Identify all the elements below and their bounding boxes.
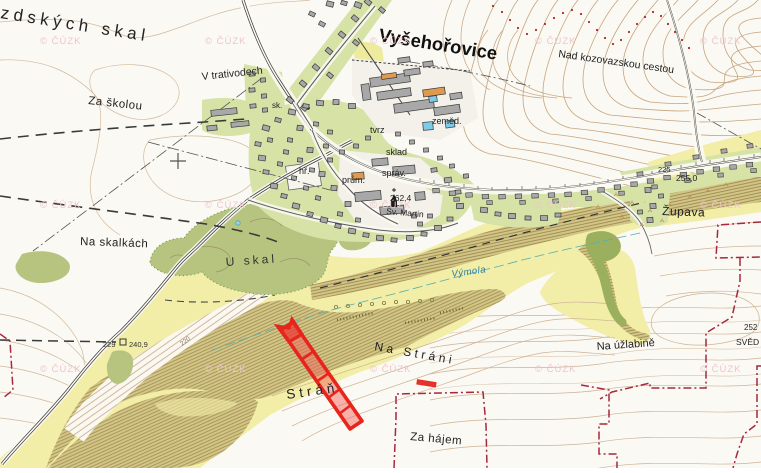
svg-text:© ČÚZK: © ČÚZK (700, 364, 742, 375)
svg-text:© ČÚZK: © ČÚZK (370, 36, 412, 47)
svg-text:tvrz: tvrz (370, 125, 385, 135)
svg-text:© ČÚZK: © ČÚZK (700, 36, 742, 47)
svg-text:zeměd.: zeměd. (432, 116, 462, 126)
svg-text:sk.: sk. (272, 101, 282, 110)
svg-text:© ČÚZK: © ČÚZK (370, 364, 412, 375)
svg-text:© ČÚZK: © ČÚZK (370, 200, 412, 211)
svg-text:© ČÚZK: © ČÚZK (535, 200, 577, 211)
svg-text:© ČÚZK: © ČÚZK (205, 200, 247, 211)
svg-text:© ČÚZK: © ČÚZK (535, 364, 577, 375)
svg-text:© ČÚZK: © ČÚZK (205, 36, 247, 47)
svg-text:Župava: Župava (662, 203, 706, 219)
svg-text:225: 225 (658, 165, 671, 174)
svg-text:252: 252 (744, 323, 758, 332)
svg-text:© ČÚZK: © ČÚZK (40, 36, 82, 47)
svg-text:správ.: správ. (382, 168, 406, 178)
svg-text:SVĚD: SVĚD (736, 337, 759, 347)
svg-text:© ČÚZK: © ČÚZK (205, 364, 247, 375)
svg-text:© ČÚZK: © ČÚZK (535, 36, 577, 47)
svg-text:Na skalkách: Na skalkách (80, 236, 149, 250)
svg-text:© ČÚZK: © ČÚZK (40, 200, 82, 211)
svg-text:229: 229 (103, 340, 116, 349)
svg-text:prům.: prům. (342, 175, 365, 185)
svg-text:hř.: hř. (299, 166, 310, 176)
svg-text:240,9: 240,9 (129, 340, 148, 349)
svg-text:sklad: sklad (386, 147, 407, 157)
svg-text:© ČÚZK: © ČÚZK (700, 200, 742, 211)
svg-text:© ČÚZK: © ČÚZK (40, 364, 82, 375)
svg-text:255,0: 255,0 (676, 173, 698, 183)
